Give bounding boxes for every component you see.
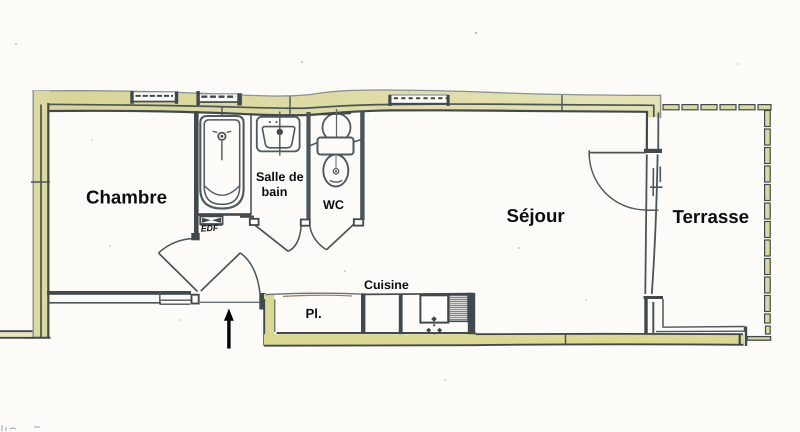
svg-text:Chambre: Chambre bbox=[86, 187, 167, 208]
svg-text:Salle de: Salle de bbox=[256, 170, 304, 184]
svg-text:Terrasse: Terrasse bbox=[673, 206, 750, 227]
svg-text:bain: bain bbox=[262, 185, 288, 199]
svg-text:EDF: EDF bbox=[201, 223, 219, 234]
svg-text:Cuisine: Cuisine bbox=[364, 278, 409, 292]
svg-text:WC: WC bbox=[323, 198, 344, 212]
svg-text:Séjour: Séjour bbox=[507, 205, 565, 226]
svg-text:Pl.: Pl. bbox=[306, 306, 322, 321]
